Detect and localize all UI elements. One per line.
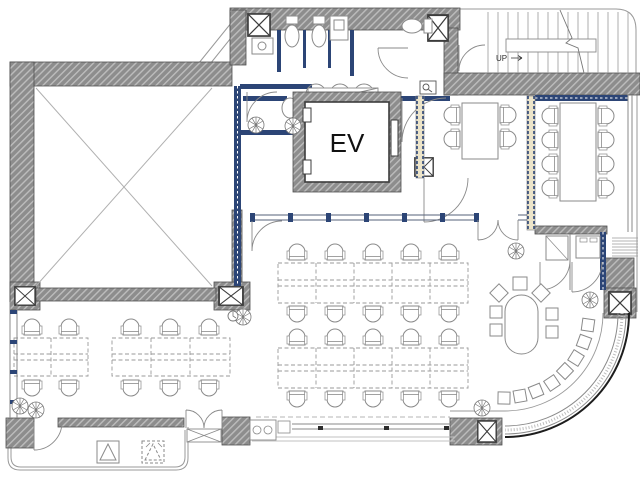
void-room xyxy=(36,88,212,286)
meeting-room-large xyxy=(527,95,632,232)
floor-plan-canvas: EV UP xyxy=(0,0,640,480)
office-glass-partition xyxy=(250,213,527,251)
stairs: UP xyxy=(459,10,628,73)
void-room-glass-wall xyxy=(234,86,241,286)
exterior-grating xyxy=(612,238,638,256)
floor-plan: EV UP xyxy=(0,0,640,480)
stairs-up-label: UP xyxy=(496,54,507,63)
elevator-label: EV xyxy=(330,128,365,158)
elevator: EV xyxy=(293,88,401,192)
wall-clock xyxy=(228,311,238,321)
bottom-window-band xyxy=(250,417,455,441)
left-office-desks xyxy=(14,319,230,396)
terrace-equipment xyxy=(97,441,164,463)
intercom-box xyxy=(420,81,436,94)
open-office-desks xyxy=(278,244,468,407)
entrance-double-door xyxy=(186,410,222,442)
lounge xyxy=(490,277,595,404)
